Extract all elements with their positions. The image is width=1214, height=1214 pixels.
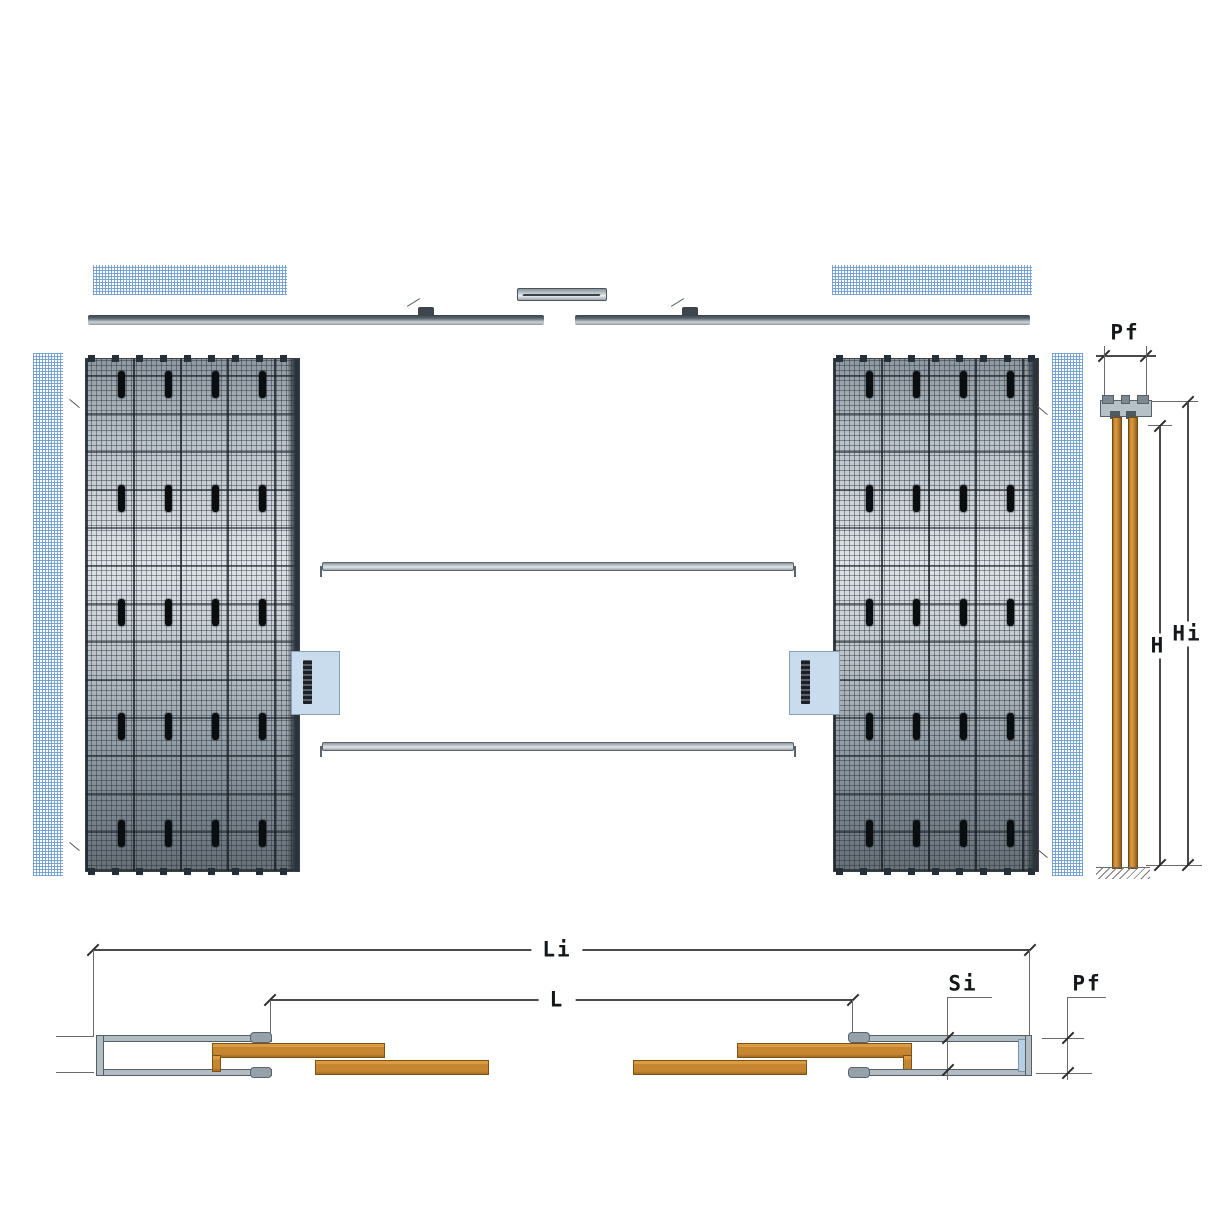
fixing-slot [866, 820, 873, 847]
plan-door-leaf-d [633, 1060, 807, 1075]
extension-line [1104, 346, 1105, 398]
extension-line [56, 1072, 94, 1073]
pf-leader-line [1068, 997, 1106, 998]
fixing-slot [1007, 820, 1014, 847]
pocket-door-frame-technical-drawing: Pf H Hi Li L [0, 0, 1214, 1214]
track-bracket-icon [418, 307, 434, 315]
extension-line [93, 950, 94, 1036]
si-leader-line [948, 997, 992, 998]
fixing-slot [118, 599, 125, 626]
h-dimension-label: H [1147, 634, 1170, 659]
fixing-slot [259, 371, 266, 398]
fixing-slot [118, 371, 125, 398]
panel-fixing-tabs [88, 355, 297, 362]
plan-door-leaf-b [315, 1060, 489, 1075]
fixing-slot [118, 820, 125, 847]
sliding-track-left [88, 315, 544, 325]
plan-door-leaf-a-edge [212, 1055, 221, 1072]
li-dimension-label: Li [531, 939, 582, 962]
extension-line [56, 1036, 94, 1037]
counterframe-panel-left [85, 358, 300, 872]
track-profile-notch [1102, 395, 1114, 404]
pf-plan-dimension-label: Pf [1070, 973, 1103, 996]
plaster-mesh-strip-left [33, 353, 63, 876]
fixing-slot [212, 713, 219, 740]
fixing-slot [913, 713, 920, 740]
fixing-slot [212, 371, 219, 398]
pocket-rail [96, 1035, 272, 1042]
fixing-slot [960, 820, 967, 847]
extension-line [270, 1000, 271, 1035]
fixing-slot [165, 820, 172, 847]
plan-door-leaf-a [212, 1043, 385, 1058]
fixing-slot [118, 713, 125, 740]
extension-line [1152, 401, 1198, 402]
track-bracket-icon [682, 307, 698, 315]
spreader-bar-lower [322, 742, 794, 751]
extension-line [1146, 346, 1147, 398]
extension-line [1146, 865, 1202, 866]
pocket-entry-guide [250, 1067, 272, 1078]
panel-fixing-tabs [88, 868, 297, 875]
brand-label-sticker-left [291, 651, 340, 715]
fixing-slot [259, 485, 266, 512]
pocket-entry-guide [848, 1032, 870, 1043]
fixing-slot [118, 485, 125, 512]
fixing-slot [165, 599, 172, 626]
pocket-rail [96, 1069, 272, 1076]
fixing-slot [1007, 371, 1014, 398]
fixing-slot [259, 599, 266, 626]
l-dimension-label: L [539, 989, 576, 1012]
fixing-slot [913, 371, 920, 398]
plan-door-leaf-c [737, 1043, 912, 1058]
fixing-slot [1007, 713, 1014, 740]
fixing-slot [913, 820, 920, 847]
fixing-slot [1007, 485, 1014, 512]
fixing-slot [866, 371, 873, 398]
extension-line [852, 1000, 853, 1035]
pocket-entry-guide [250, 1032, 272, 1043]
fixing-slot [1007, 599, 1014, 626]
brand-label-sticker-right [789, 651, 840, 715]
extension-line [1042, 1038, 1084, 1039]
fixing-slot [913, 485, 920, 512]
extension-line [1029, 950, 1030, 1036]
fixing-slot [212, 599, 219, 626]
pf-top-dimension-label: Pf [1108, 322, 1141, 345]
panel-side-upright [1027, 359, 1038, 871]
fixing-slot [960, 485, 967, 512]
track-joint-cover [517, 288, 607, 301]
track-profile-notch [1137, 395, 1149, 404]
fixing-slot [259, 713, 266, 740]
pocket-end-cap [96, 1035, 104, 1076]
pocket-end-cap [1025, 1035, 1032, 1076]
fixing-slot [212, 485, 219, 512]
fixing-slot [212, 820, 219, 847]
plaster-mesh-strip-top-left [93, 265, 287, 295]
counterframe-panel-right [833, 358, 1039, 872]
track-profile-notch [1121, 395, 1130, 404]
floor-hatch [1096, 867, 1150, 879]
fixing-slot [866, 599, 873, 626]
fixing-slot [165, 485, 172, 512]
fixing-slot [960, 371, 967, 398]
fixing-slot [913, 599, 920, 626]
fixing-slot [259, 820, 266, 847]
pocket-entry-guide [848, 1067, 870, 1078]
fixing-slot [165, 713, 172, 740]
plaster-mesh-strip-right [1052, 353, 1083, 876]
section-door-leaf-2 [1128, 417, 1138, 869]
anchor-hook-mark [69, 399, 80, 408]
fixing-slot [165, 371, 172, 398]
si-dimension-label: Si [946, 973, 979, 996]
sliding-track-right [575, 315, 1030, 325]
plaster-mesh-strip-top-right [832, 265, 1032, 295]
section-door-leaf-1 [1112, 417, 1122, 869]
panel-fixing-tabs [836, 868, 1036, 875]
fixing-slot [960, 713, 967, 740]
spreader-bar-upper [322, 562, 794, 571]
hi-dimension-label: Hi [1168, 622, 1205, 647]
panel-side-upright [288, 359, 299, 871]
fixing-slot [960, 599, 967, 626]
anchor-hook-mark [69, 842, 80, 851]
fixing-slot [866, 485, 873, 512]
section-track-profile [1100, 395, 1150, 419]
panel-fixing-tabs [836, 355, 1036, 362]
fixing-slot [866, 713, 873, 740]
